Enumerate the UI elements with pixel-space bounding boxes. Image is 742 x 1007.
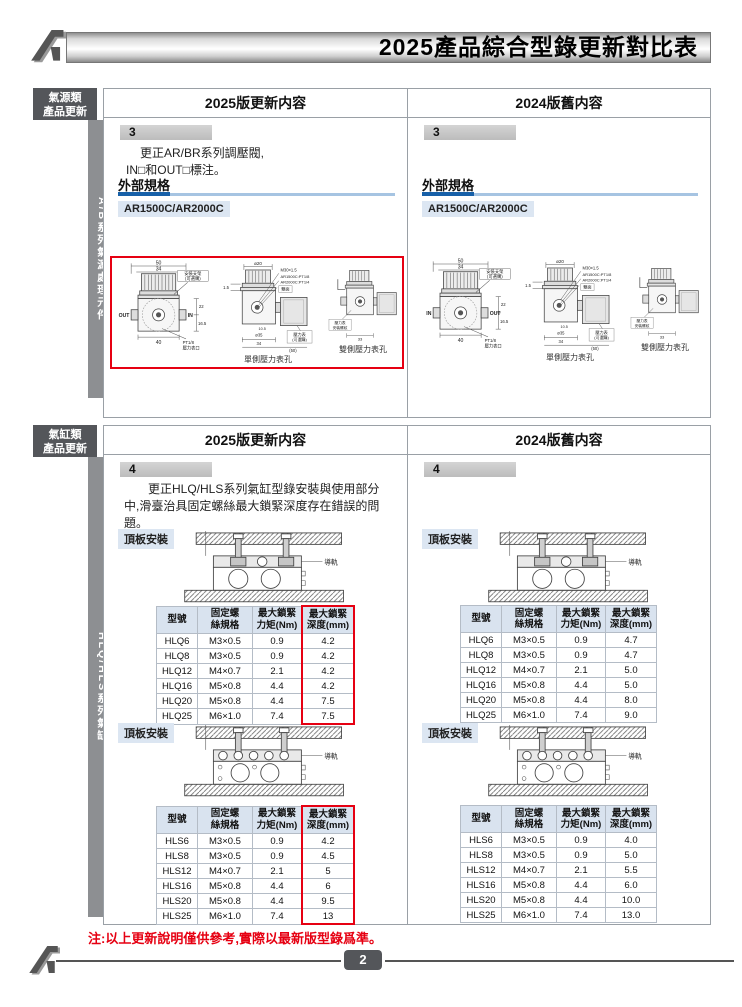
section1-col-2024: 2024版舊内容 3 外部規格 AR1500C/AR2000C 50 34 <box>408 89 710 417</box>
svg-text:(50): (50) <box>289 348 297 353</box>
regulator-front-diagram: 50 34 IN OUT <box>416 258 512 351</box>
brand-logo-icon <box>28 946 62 976</box>
table-row: HLQ16M5×0.84.45.0 <box>461 678 657 693</box>
regulator-dual-diagram: 壓力表 安裝螺紋 33 雙側壓力表孔 <box>326 260 400 355</box>
svg-text:34: 34 <box>559 339 564 344</box>
svg-text:1.5: 1.5 <box>223 285 229 290</box>
table-row: HLS12M4×0.72.15 <box>157 864 355 879</box>
svg-text:壓力表: 壓力表 <box>335 320 346 325</box>
table-row: HLQ25M6×1.07.49.0 <box>461 708 657 723</box>
description-line1: 更正AR/BR系列調壓閥, <box>140 145 264 162</box>
table-row: HLQ8M3×0.50.94.7 <box>461 648 657 663</box>
column-header-new: 2025版更新内容 <box>104 89 407 118</box>
table-row: HLQ12M4×0.72.14.2 <box>157 664 355 679</box>
svg-text:ø20: ø20 <box>254 261 262 266</box>
footer-note: 注:以上更新說明僅供參考,實際以最新版型錄爲準。 <box>88 928 382 947</box>
section1-col-2025: 2025版更新内容 3 更正AR/BR系列調壓閥, IN□和OUT□標注。 外部… <box>104 89 408 417</box>
diagram-caption: 雙側壓力表孔 <box>641 342 689 353</box>
svg-text:壓力表: 壓力表 <box>637 318 648 323</box>
svg-text:34: 34 <box>458 265 464 271</box>
section2-col-2024: 2024版舊内容 4 頂板安裝 導軌 <box>408 426 710 924</box>
item-number-badge: 4 <box>424 462 516 477</box>
table-row: HLS6M3×0.50.94.0 <box>461 833 657 848</box>
svg-text:10.5: 10.5 <box>561 325 568 329</box>
left-port-label: IN <box>426 311 431 317</box>
table-row: HLQ20M5×0.84.47.5 <box>157 694 355 709</box>
right-port-label: OUT <box>490 311 502 317</box>
old-diagram-row: 50 34 IN OUT <box>416 258 702 363</box>
right-port-label: IN <box>188 313 193 319</box>
svg-text:PT1/8: PT1/8 <box>183 340 195 345</box>
table-row: HLQ12M4×0.72.15.0 <box>461 663 657 678</box>
page-number-badge: 2 <box>344 950 382 970</box>
table-row: HLS16M5×0.84.46 <box>157 879 355 894</box>
diagram-caption: 單側壓力表孔 <box>244 354 292 365</box>
svg-text:安裝螺紋: 安裝螺紋 <box>635 323 650 328</box>
svg-text:(可選購): (可選購) <box>292 337 307 342</box>
item-number-badge: 3 <box>424 125 516 140</box>
svg-text:22: 22 <box>501 302 506 307</box>
table-row: HLS8M3×0.50.95.0 <box>461 848 657 863</box>
hlq-table-2024: 型號 固定螺 絲規格 最大鎖緊 力矩(Nm) 最大鎖緊 深度(mm) HLQ6M… <box>460 605 657 723</box>
svg-text:50: 50 <box>458 259 464 265</box>
svg-text:(50): (50) <box>591 346 599 351</box>
svg-text:1.5: 1.5 <box>525 283 531 288</box>
item-number-badge: 3 <box>120 125 212 140</box>
table-row: HLQ8M3×0.50.94.2 <box>157 649 355 664</box>
updated-diagram-highlight-box: 50 34 OUT IN <box>110 256 404 369</box>
svg-text:PT1/8: PT1/8 <box>485 338 497 343</box>
svg-text:(可選購): (可選購) <box>487 273 503 280</box>
svg-text:33: 33 <box>660 334 665 339</box>
table-row: HLQ20M5×0.84.48.0 <box>461 693 657 708</box>
diagram-caption: 單側壓力表孔 <box>546 352 594 363</box>
svg-text:10.5: 10.5 <box>259 327 266 331</box>
svg-text:壓力表口: 壓力表口 <box>183 345 200 352</box>
svg-text:16.5: 16.5 <box>198 321 207 326</box>
svg-text:AR1500C:PT1/8: AR1500C:PT1/8 <box>582 272 612 277</box>
svg-text:AR1500C:PT1/8: AR1500C:PT1/8 <box>280 274 310 279</box>
section2-panel: 2025版更新内容 4 更正HLQ/HLS系列氣缸型錄安裝與使用部分中,滑臺治具… <box>103 425 711 925</box>
svg-text:壓力表: 壓力表 <box>293 331 305 337</box>
section2-col-2025: 2025版更新内容 4 更正HLQ/HLS系列氣缸型錄安裝與使用部分中,滑臺治具… <box>104 426 408 924</box>
hls-table-2024: 型號 固定螺 絲規格 最大鎖緊 力矩(Nm) 最大鎖緊 深度(mm) HLS6M… <box>460 805 657 923</box>
svg-text:AR2000C:PT1/4: AR2000C:PT1/4 <box>582 278 612 283</box>
item-number-badge: 4 <box>120 462 212 477</box>
svg-text:16.5: 16.5 <box>500 319 509 324</box>
description-text: 更正HLQ/HLS系列氣缸型錄安裝與使用部分中,滑臺治具固定螺絲最大鎖緊深度存在… <box>124 481 392 532</box>
rail-label: 導軌 <box>628 557 642 566</box>
table-row: HLS16M5×0.84.46.0 <box>461 878 657 893</box>
spec-heading-rule <box>118 193 395 196</box>
svg-text:M30×1.5: M30×1.5 <box>280 268 297 273</box>
svg-text:M30×1.5: M30×1.5 <box>582 266 599 271</box>
table-row: HLS20M5×0.84.49.5 <box>157 894 355 909</box>
table-row: HLS25M6×1.07.413 <box>157 909 355 925</box>
svg-text:34: 34 <box>156 267 162 273</box>
svg-text:ø35: ø35 <box>557 330 565 335</box>
hlq-mount-diagram: 導軌 <box>156 531 376 604</box>
svg-text:(可選購): (可選購) <box>185 275 201 282</box>
column-header-old: 2024版舊内容 <box>408 426 710 455</box>
table-row: HLS8M3×0.50.94.5 <box>157 849 355 864</box>
table-row: HLS6M3×0.50.94.2 <box>157 834 355 849</box>
hls-mount-diagram: 導軌 <box>460 725 680 798</box>
footer-rule <box>56 960 734 962</box>
svg-text:壓力表口: 壓力表口 <box>485 343 502 350</box>
hls-mount-diagram: 導軌 <box>156 725 376 798</box>
section1-category-label: 氣源類 產品更新 <box>33 88 97 120</box>
hlq-mount-diagram: 導軌 <box>460 531 680 604</box>
rail-label: 導軌 <box>324 557 338 566</box>
model-chip: AR1500C/AR2000C <box>422 201 534 217</box>
regulator-front-diagram: 50 34 OUT IN <box>114 260 210 353</box>
svg-text:安裝螺紋: 安裝螺紋 <box>333 325 348 330</box>
left-port-label: OUT <box>119 313 131 319</box>
hlq-table-2025: 型號 固定螺 絲規格 最大鎖緊 力矩(Nm) 最大鎖緊 深度(mm) HLQ6M… <box>156 605 355 725</box>
svg-text:雙面: 雙面 <box>281 286 289 292</box>
svg-text:22: 22 <box>199 304 204 309</box>
table-row: HLQ16M5×0.84.44.2 <box>157 679 355 694</box>
svg-text:40: 40 <box>458 338 464 344</box>
hls-table-2025: 型號 固定螺 絲規格 最大鎖緊 力矩(Nm) 最大鎖緊 深度(mm) HLS6M… <box>156 805 355 925</box>
svg-text:ø20: ø20 <box>556 259 564 264</box>
svg-text:33: 33 <box>358 336 363 341</box>
svg-text:40: 40 <box>156 340 162 346</box>
regulator-side-diagram: ø20 1.5 M30×1.5 AR150 <box>214 260 322 365</box>
table-row: HLS20M5×0.84.410.0 <box>461 893 657 908</box>
table-row: HLQ25M6×1.07.47.5 <box>157 709 355 725</box>
regulator-side-diagram: ø20 1.5 M30×1.5 AR150 <box>516 258 624 363</box>
column-header-old: 2024版舊内容 <box>408 89 710 118</box>
brand-logo-icon <box>30 30 68 64</box>
svg-text:AR2000C:PT1/4: AR2000C:PT1/4 <box>280 280 310 285</box>
table-row: HLQ6M3×0.50.94.2 <box>157 634 355 649</box>
svg-text:ø35: ø35 <box>255 332 263 337</box>
model-chip: AR1500C/AR2000C <box>118 201 230 217</box>
diagram-caption: 雙側壓力表孔 <box>339 344 387 355</box>
column-header-new: 2025版更新内容 <box>104 426 407 455</box>
section2-category-label: 氣缸類 產品更新 <box>33 425 97 457</box>
svg-text:雙面: 雙面 <box>583 284 591 290</box>
spec-heading-rule <box>422 193 698 196</box>
section1-panel: 2025版更新内容 3 更正AR/BR系列調壓閥, IN□和OUT□標注。 外部… <box>103 88 711 418</box>
page-title: 2025產品綜合型錄更新對比表 <box>67 33 710 62</box>
svg-text:(可選購): (可選購) <box>594 335 609 340</box>
svg-text:50: 50 <box>156 261 162 267</box>
svg-text:壓力表: 壓力表 <box>595 329 607 335</box>
rail-label: 導軌 <box>324 751 338 760</box>
table-row: HLS12M4×0.72.15.5 <box>461 863 657 878</box>
table-row: HLQ6M3×0.50.94.7 <box>461 633 657 648</box>
table-row: HLS25M6×1.07.413.0 <box>461 908 657 923</box>
rail-label: 導軌 <box>628 751 642 760</box>
page-title-bar: 2025產品綜合型錄更新對比表 <box>66 32 711 63</box>
regulator-dual-diagram: 壓力表 安裝螺紋 33 雙側壓力表孔 <box>628 258 702 353</box>
svg-text:34: 34 <box>257 341 262 346</box>
